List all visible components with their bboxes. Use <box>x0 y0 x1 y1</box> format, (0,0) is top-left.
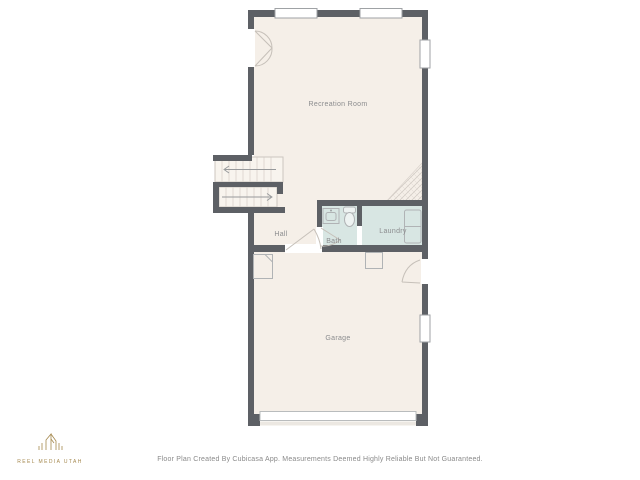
wall-hall-garage <box>248 245 428 252</box>
window-icon <box>420 40 430 68</box>
floors <box>254 16 422 414</box>
floor-plan: Recreation Room Hall Bath Laundry Garage <box>0 0 640 480</box>
wall-garage-bottom-left <box>248 414 260 426</box>
garage-floor <box>254 252 422 414</box>
footer-disclaimer: Floor Plan Created By Cubicasa App. Meas… <box>0 456 640 463</box>
room-label-recreation: Recreation Room <box>309 101 368 108</box>
wall-stair-right-stub <box>277 187 283 194</box>
room-label-garage: Garage <box>325 335 350 342</box>
floor-plan-canvas: Recreation Room Hall Bath Laundry Garage… <box>0 0 640 480</box>
wall-bath-laundry <box>357 206 362 226</box>
wall-bath-top <box>317 200 422 206</box>
house-outline-icon <box>33 431 67 453</box>
room-label-bath: Bath <box>326 238 342 245</box>
stairs-down-flight-icon <box>219 187 277 207</box>
garage-door-icon <box>260 412 416 426</box>
window-icon <box>275 9 317 19</box>
wall-stair-mid <box>213 182 283 187</box>
wall-stair-bottom <box>213 207 285 213</box>
room-label-hall: Hall <box>274 231 287 238</box>
window-icon <box>420 315 430 342</box>
wall-bath-left <box>317 200 322 227</box>
toilet-icon <box>344 207 356 227</box>
window-icon <box>360 9 402 19</box>
wall-stair-top-stub <box>213 155 252 161</box>
wall-right <box>422 10 428 426</box>
room-label-laundry: Laundry <box>379 228 407 235</box>
wall-garage-bottom-right <box>416 414 428 426</box>
wall-left-lower <box>248 213 254 426</box>
